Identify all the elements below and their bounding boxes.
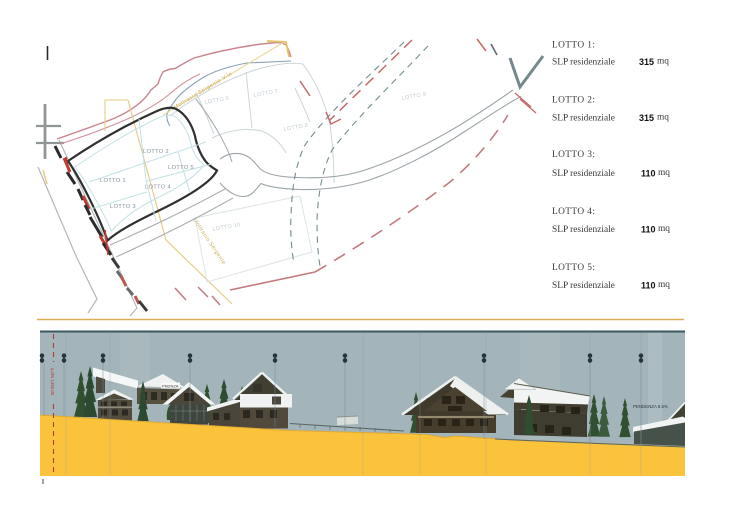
svg-text:LOTTO 10: LOTTO 10 — [212, 222, 241, 233]
svg-text:LOTTO 2:: LOTTO 2: — [552, 96, 595, 106]
svg-text:315: 315 — [639, 57, 654, 67]
svg-text:mq: mq — [658, 224, 670, 234]
svg-text:LOTTO 7: LOTTO 7 — [253, 89, 278, 99]
svg-text:315: 315 — [639, 113, 654, 123]
svg-text:SLP residenziale: SLP residenziale — [552, 114, 615, 124]
svg-text:LOTTO 1: LOTTO 1 — [100, 178, 126, 184]
svg-text:LOTTO 2: LOTTO 2 — [143, 149, 169, 155]
svg-text:LOTTO 1:: LOTTO 1: — [552, 41, 595, 51]
svg-text:PNDNZA: PNDNZA — [162, 383, 179, 388]
svg-text:PENDENZA 8.5%: PENDENZA 8.5% — [633, 404, 668, 409]
svg-text:mq: mq — [657, 113, 669, 123]
svg-text:LOTTO 3:: LOTTO 3: — [552, 150, 595, 160]
svg-text:LOTTO 6: LOTTO 6 — [204, 96, 229, 106]
svg-text:110: 110 — [641, 225, 656, 235]
svg-text:LOTTO 3: LOTTO 3 — [110, 204, 136, 210]
svg-text:LOTTO 5:: LOTTO 5: — [552, 263, 595, 273]
svg-text:q.slm 1480.00: q.slm 1480.00 — [50, 368, 55, 396]
svg-text:LOTTO 9: LOTTO 9 — [401, 92, 426, 102]
svg-text:LOTTO 5: LOTTO 5 — [168, 165, 194, 171]
svg-text:110: 110 — [641, 281, 656, 291]
svg-text:SLP residenziale: SLP residenziale — [552, 281, 615, 291]
svg-text:SLP residenziale: SLP residenziale — [552, 58, 615, 68]
svg-text:mq: mq — [658, 280, 670, 290]
svg-text:SLP residenziale: SLP residenziale — [552, 169, 615, 179]
svg-text:LOTTO 4:: LOTTO 4: — [552, 207, 595, 217]
svg-text:LOTTO 8: LOTTO 8 — [283, 123, 308, 133]
svg-text:SLP residenziale: SLP residenziale — [552, 225, 615, 235]
svg-text:mq: mq — [657, 57, 669, 67]
svg-text:110: 110 — [641, 169, 656, 179]
svg-text:mq: mq — [658, 168, 670, 178]
svg-text:LOTTO 4: LOTTO 4 — [145, 185, 171, 191]
